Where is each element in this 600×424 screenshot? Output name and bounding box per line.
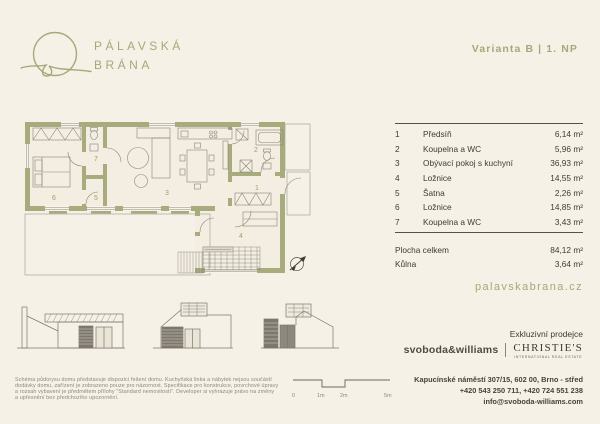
table-row: 6 Ložnice 14,85 m² bbox=[395, 200, 583, 215]
christies-wordmark: CHRISTIE'S bbox=[513, 342, 583, 354]
brand-logo-icon bbox=[20, 26, 92, 84]
room-name: Koupelna a WC bbox=[423, 144, 555, 154]
contact-email[interactable]: info@svoboda-williams.com bbox=[414, 396, 583, 407]
total-row: Kůlna 3,64 m² bbox=[395, 257, 583, 271]
total-area: 84,12 m² bbox=[550, 245, 583, 255]
room-area: 6,14 m² bbox=[555, 129, 583, 139]
floor-plan: 1 2 3 4 5 6 7 bbox=[13, 108, 358, 298]
table-row: 4 Ložnice 14,55 m² bbox=[395, 171, 583, 186]
table-row: 1 Předsíň 6,14 m² bbox=[395, 127, 583, 142]
christies-subtitle: INTERNATIONAL REAL ESTATE bbox=[514, 355, 582, 359]
room-number: 2 bbox=[395, 144, 423, 154]
room-number: 3 bbox=[395, 158, 423, 168]
scale-label-0: 0 bbox=[292, 393, 295, 399]
scale-label-5m: 5m bbox=[384, 393, 392, 399]
contact-address: Kapucínské náměstí 307/15, 602 00, Brno … bbox=[414, 374, 583, 385]
exclusive-seller-label: Exkluzivní prodejce bbox=[510, 329, 583, 339]
website-link[interactable]: palavskabrana.cz bbox=[475, 281, 583, 293]
contact-phones: +420 543 250 711, +420 724 551 238 bbox=[414, 385, 583, 396]
room-name: Předsíň bbox=[423, 129, 555, 139]
room-label-2: 2 bbox=[254, 147, 258, 154]
room-number: 5 bbox=[395, 188, 423, 198]
scale-bar: 0 1m 2m 5m bbox=[292, 372, 394, 400]
room-name: Koupelna a WC bbox=[423, 217, 555, 227]
variant-title: Varianta B | 1. NP bbox=[472, 43, 578, 55]
room-label-1: 1 bbox=[255, 185, 259, 192]
logo-divider bbox=[505, 343, 506, 357]
terrace-outline bbox=[25, 214, 210, 275]
brochure-page: PÁLAVSKÁ BRÁNA Varianta B | 1. NP bbox=[0, 0, 600, 424]
room-label-4: 4 bbox=[239, 233, 243, 240]
svoboda-williams-logo: svoboda&williams bbox=[404, 344, 499, 356]
agency-logos: svoboda&williams CHRISTIE'S INTERNATIONA… bbox=[404, 342, 583, 359]
area-totals: Plocha celkem 84,12 m² Kůlna 3,64 m² bbox=[395, 243, 583, 271]
table-row: 3 Obývací pokoj s kuchyní 36,93 m² bbox=[395, 156, 583, 171]
north-arrow-icon bbox=[290, 256, 306, 271]
room-number: 6 bbox=[395, 202, 423, 212]
room-area: 5,96 m² bbox=[555, 144, 583, 154]
table-row: 5 Šatna 2,26 m² bbox=[395, 185, 583, 200]
total-label: Kůlna bbox=[395, 259, 555, 269]
room-number: 1 bbox=[395, 129, 423, 139]
brand-name: PÁLAVSKÁ BRÁNA bbox=[94, 37, 184, 75]
table-row: 7 Koupelna a WC 3,43 m² bbox=[395, 215, 583, 230]
total-label: Plocha celkem bbox=[395, 245, 550, 255]
room-name: Obývací pokoj s kuchyní bbox=[423, 158, 550, 168]
room-label-5: 5 bbox=[94, 195, 98, 202]
room-area: 3,43 m² bbox=[555, 217, 583, 227]
room-name: Ložnice bbox=[423, 202, 550, 212]
contact-block: Kapucínské náměstí 307/15, 602 00, Brno … bbox=[414, 374, 583, 407]
total-row: Plocha celkem 84,12 m² bbox=[395, 243, 583, 257]
room-name: Ložnice bbox=[423, 173, 550, 183]
shed-outline bbox=[285, 124, 310, 170]
disclaimer-line: a upřesnění bez předchozího upozornění. bbox=[15, 396, 278, 402]
total-area: 3,64 m² bbox=[555, 259, 583, 269]
scale-label-2m: 2m bbox=[340, 393, 348, 399]
disclaimer-text: Schéma půdorysu domu představuje dispozi… bbox=[15, 378, 278, 402]
table-row: 2 Koupelna a WC 5,96 m² bbox=[395, 142, 583, 157]
brand-name-line1: PÁLAVSKÁ bbox=[94, 37, 184, 56]
room-area-table: 1 Předsíň 6,14 m² 2 Koupelna a WC 5,96 m… bbox=[395, 123, 583, 233]
room-name: Šatna bbox=[423, 188, 555, 198]
elevation-drawings bbox=[15, 300, 340, 358]
christies-logo: CHRISTIE'S INTERNATIONAL REAL ESTATE bbox=[513, 342, 583, 359]
brand-name-line2: BRÁNA bbox=[94, 56, 184, 75]
room-area: 2,26 m² bbox=[555, 188, 583, 198]
room-number: 7 bbox=[395, 217, 423, 227]
scale-label-1m: 1m bbox=[317, 393, 325, 399]
room-number: 4 bbox=[395, 173, 423, 183]
room-label-7: 7 bbox=[94, 156, 98, 163]
room-label-3: 3 bbox=[165, 190, 169, 197]
room-area: 14,55 m² bbox=[550, 173, 583, 183]
room-label-6: 6 bbox=[52, 195, 56, 202]
room-area: 36,93 m² bbox=[550, 158, 583, 168]
room-area: 14,85 m² bbox=[550, 202, 583, 212]
